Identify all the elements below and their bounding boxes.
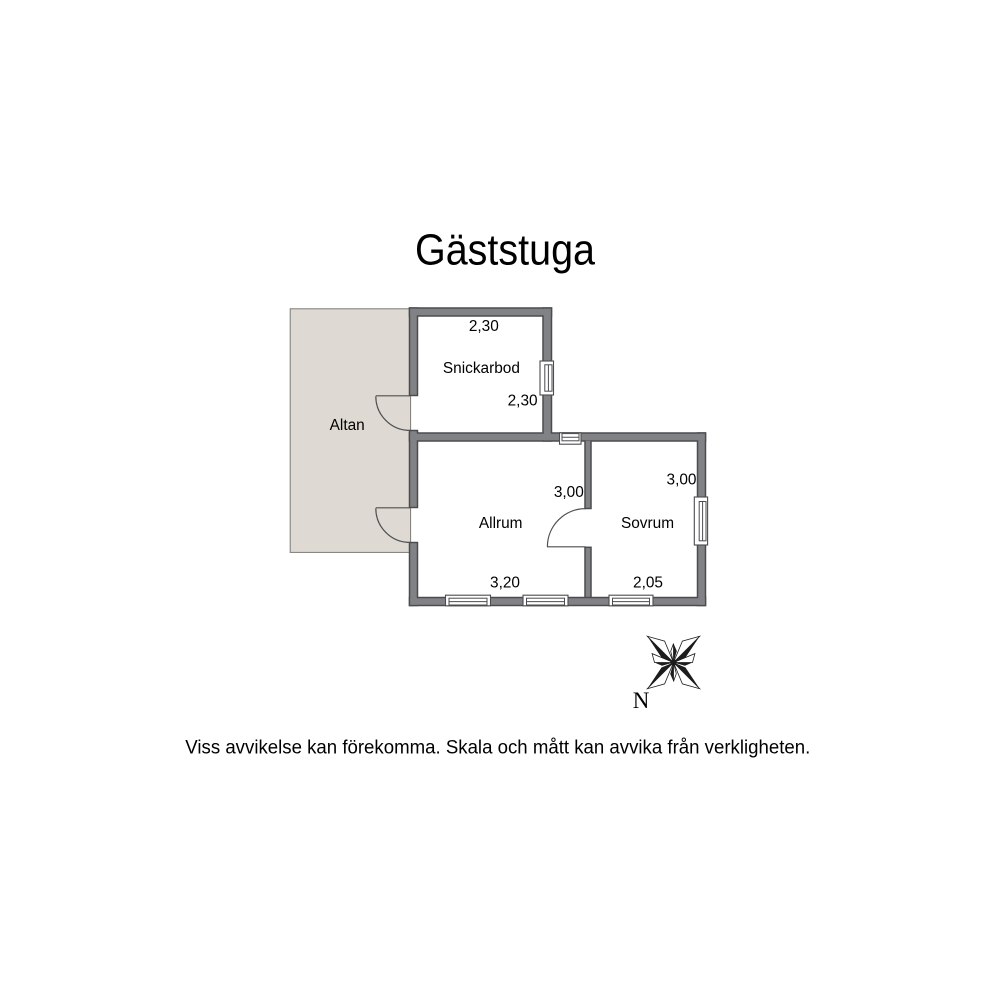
svg-text:Sovrum: Sovrum <box>621 515 674 532</box>
svg-text:2,30: 2,30 <box>508 393 538 410</box>
svg-text:Altan: Altan <box>330 417 365 434</box>
svg-text:Snickarbod: Snickarbod <box>443 360 520 377</box>
svg-text:N: N <box>633 688 650 713</box>
svg-text:3,00: 3,00 <box>667 472 697 489</box>
svg-text:Viss avvikelse kan förekomma.: Viss avvikelse kan förekomma. Skala och … <box>185 737 810 758</box>
svg-text:2,30: 2,30 <box>469 318 499 335</box>
svg-text:Gäststuga: Gäststuga <box>415 226 595 275</box>
svg-text:Allrum: Allrum <box>479 515 523 532</box>
svg-text:3,00: 3,00 <box>554 484 584 501</box>
svg-text:2,05: 2,05 <box>633 574 663 591</box>
svg-text:3,20: 3,20 <box>490 574 520 591</box>
